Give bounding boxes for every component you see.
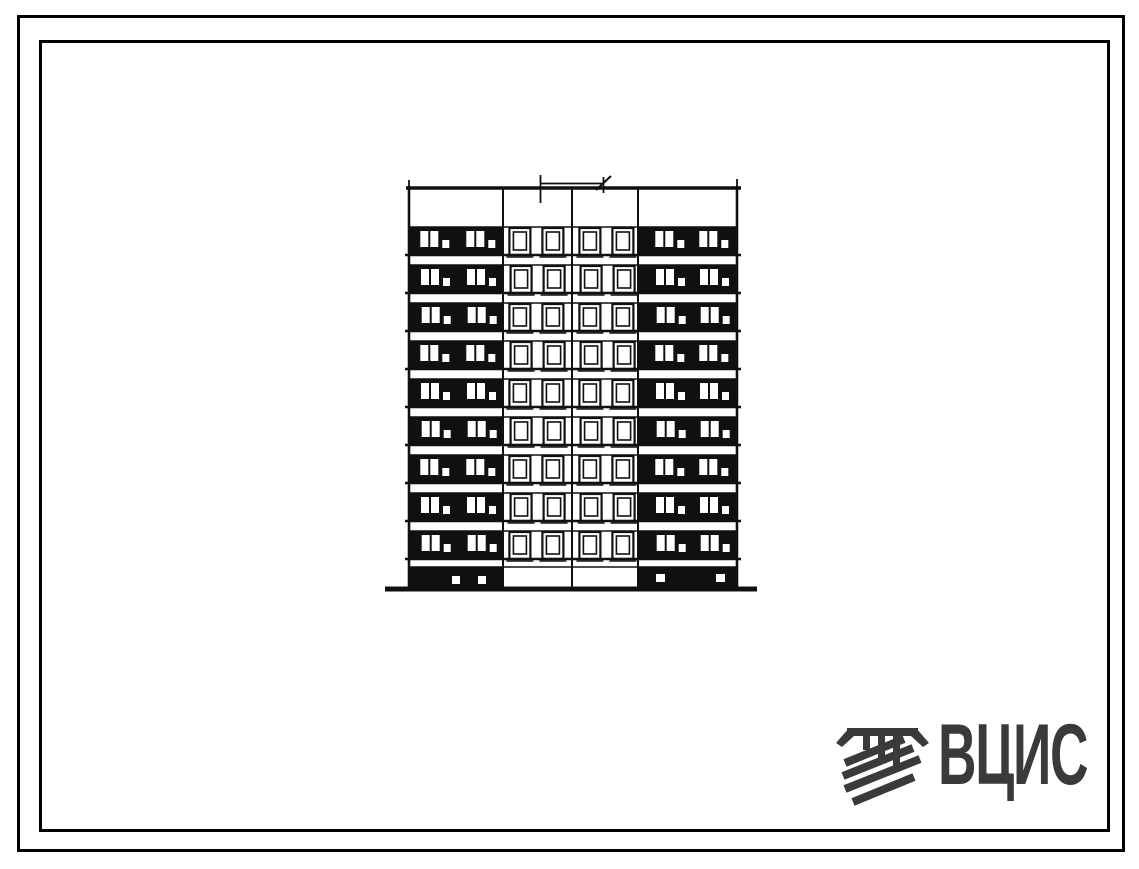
sheet: ВЦИС <box>0 0 1139 869</box>
emblem-shapes <box>836 728 929 802</box>
vcis-logo-icon <box>834 712 940 812</box>
vcis-logo: ВЦИС <box>834 710 1084 815</box>
vcis-logo-text: ВЦИС <box>938 712 1087 798</box>
